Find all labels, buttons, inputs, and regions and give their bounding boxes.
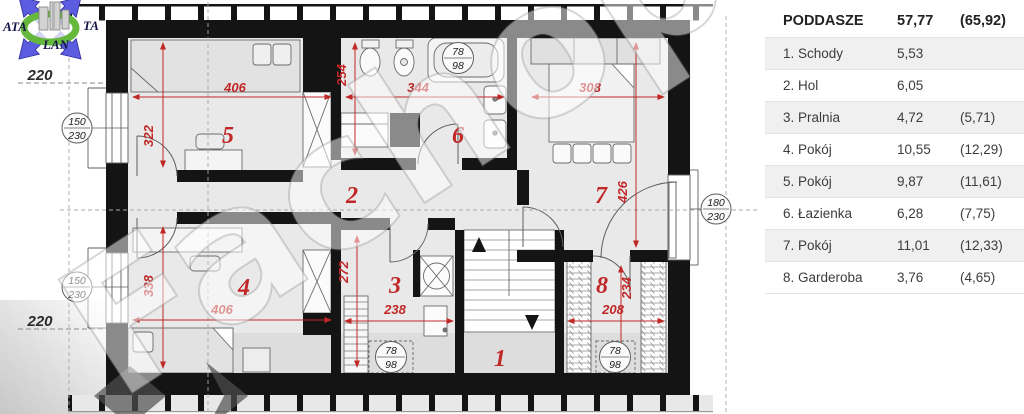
balcony-door-marker: 180 230 [701,194,731,224]
table-row: 8. Garderoba 3,76 (4,65) [765,262,1024,294]
row-total: (12,33) [960,238,1024,253]
table-header-name: PODDASZE [783,13,897,29]
dim-room5-width: 406 [223,80,246,95]
floor-plan: 406 322 254 344 308 426 338 406 238 272 … [0,0,760,414]
row-name: 7. Pokój [783,238,897,253]
table-row: 3. Pralnia 4,72 (5,71) [765,102,1024,134]
window-marker-1: 150 230 [62,113,92,143]
row-name: 5. Pokój [783,174,897,189]
dim-room5-height: 322 [141,124,156,146]
table-row: 6. Łazienka 6,28 (7,75) [765,198,1024,230]
row-total: (7,75) [960,206,1024,221]
logo-text-left: ATA [2,19,27,34]
svg-text:230: 230 [706,211,725,223]
table-row: 5. Pokój 9,87 (11,61) [765,166,1024,198]
table-row: 2. Hol 6,05 [765,70,1024,102]
row-total: (12,29) [960,142,1024,157]
room3-marker: 78 98 [376,342,407,373]
svg-text:78: 78 [385,345,397,357]
svg-text:78: 78 [609,345,621,357]
table-row: 1. Schody 5,53 [765,38,1024,70]
row-area: 10,55 [897,142,960,157]
row-total: (11,61) [960,174,1024,189]
row-area: 11,01 [897,238,960,253]
row-name: 8. Garderoba [783,270,897,285]
svg-text:150: 150 [68,116,86,128]
room-number-1: 1 [494,346,506,372]
row-name: 6. Łazienka [783,206,897,221]
row-area: 6,05 [897,78,960,93]
room-number-8: 8 [596,273,608,299]
height-label-top: 220 [26,67,53,84]
table-row: 4. Pokój 10,55 (12,29) [765,134,1024,166]
row-area: 4,72 [897,110,960,125]
area-table-header: PODDASZE 57,77 (65,92) [765,5,1024,38]
logo-text-bottom: LAN [42,37,70,52]
row-total: (4,65) [960,270,1024,285]
row-area: 5,53 [897,46,960,61]
row-area: 9,87 [897,174,960,189]
table-header-area: 57,77 [897,13,960,29]
room-number-7: 7 [595,183,608,209]
row-name: 2. Hol [783,78,897,93]
dim-room7-height: 426 [615,180,630,203]
row-name: 3. Pralnia [783,110,897,125]
room8-marker: 78 98 [600,342,631,373]
dim-room8-height: 234 [619,276,634,299]
row-area: 3,76 [897,270,960,285]
table-row: 7. Pokój 11,01 (12,33) [765,230,1024,262]
svg-text:98: 98 [385,359,397,371]
dim-room8-width: 208 [601,302,624,317]
row-name: 1. Schody [783,46,897,61]
row-area: 6,28 [897,206,960,221]
area-table: PODDASZE 57,77 (65,92) 1. Schody 5,53 2.… [765,5,1024,294]
dim-room3-width: 238 [383,302,406,317]
svg-text:230: 230 [67,130,86,142]
svg-text:98: 98 [609,359,621,371]
row-name: 4. Pokój [783,142,897,157]
table-header-total: (65,92) [960,13,1024,29]
svg-text:180: 180 [707,197,725,209]
height-label-bottom: 220 [26,313,53,330]
row-total: (5,71) [960,110,1024,125]
logo-text-right: TA [83,18,99,33]
